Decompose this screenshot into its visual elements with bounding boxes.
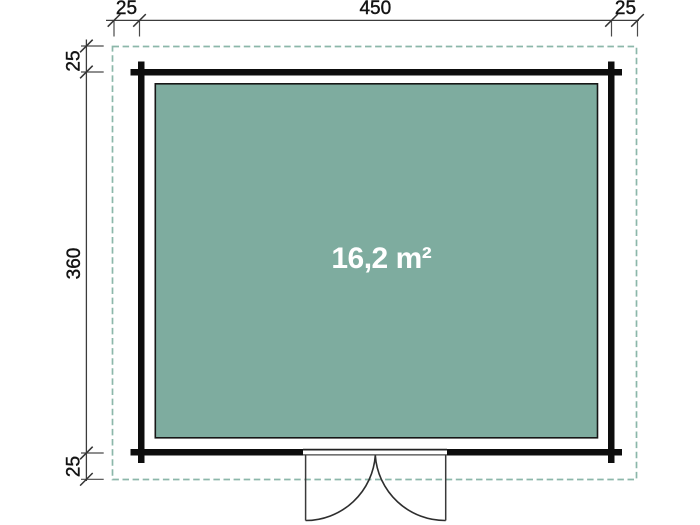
svg-text:25: 25 [64, 50, 85, 71]
svg-text:360: 360 [64, 248, 85, 280]
svg-text:25: 25 [116, 0, 137, 19]
svg-text:25: 25 [64, 456, 85, 477]
svg-text:450: 450 [359, 0, 391, 19]
svg-text:16,2 m²: 16,2 m² [331, 242, 431, 275]
svg-text:25: 25 [615, 0, 636, 19]
